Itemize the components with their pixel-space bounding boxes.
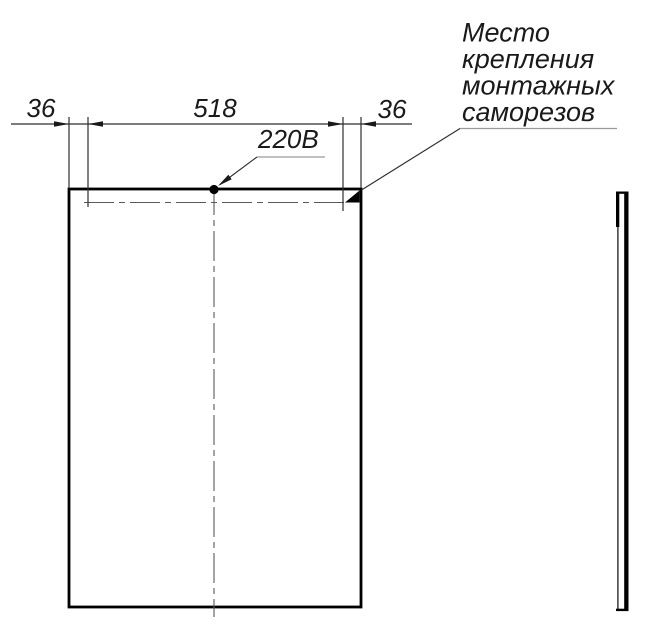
dim-arrow-right-inner <box>328 121 343 127</box>
note-text-line-3: монтажных <box>462 71 616 101</box>
side-view-bottom-cap <box>616 609 629 611</box>
dim-label-right-offset: 36 <box>378 94 407 124</box>
power-point-dot <box>209 185 218 194</box>
note-text-line-1: Место <box>462 18 550 48</box>
note-leader-line <box>362 129 461 191</box>
side-view <box>616 192 629 612</box>
technical-drawing-canvas: 36 518 36 220В Место крепления монтажных… <box>0 0 670 640</box>
dim-label-mounting-span: 518 <box>193 93 237 123</box>
front-view-outline <box>69 189 361 607</box>
mounting-corner-marker <box>345 191 360 203</box>
side-view-top-cap <box>616 192 629 194</box>
power-label: 220В <box>257 124 319 154</box>
dim-arrow-right-outer <box>361 121 376 127</box>
note-text-line-4: саморезов <box>462 97 595 127</box>
dim-arrow-left-outer <box>54 121 69 127</box>
side-view-mount-bracket <box>616 192 619 228</box>
dim-label-left-offset: 36 <box>27 93 56 123</box>
dim-arrow-left-inner <box>88 121 103 127</box>
side-view-front-face-line <box>617 193 618 610</box>
power-leader-arrow <box>218 175 232 186</box>
side-view-back-edge <box>624 192 628 612</box>
note-text-line-2: крепления <box>462 44 594 74</box>
